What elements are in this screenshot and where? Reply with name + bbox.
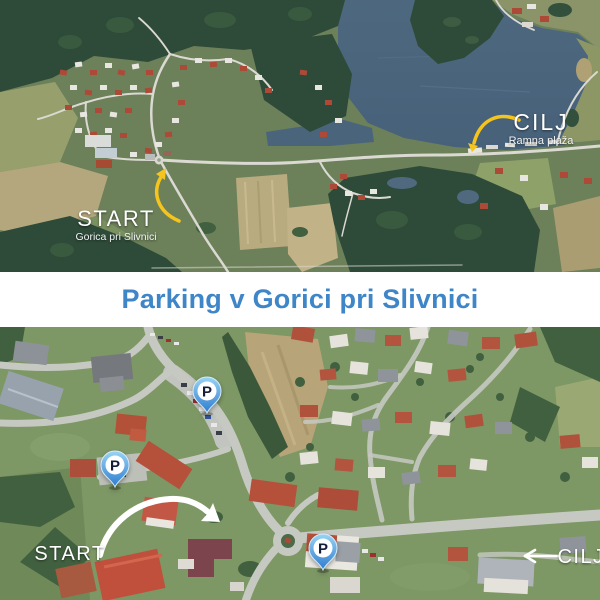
- roundabout: [273, 526, 303, 556]
- cilj-label: CILJ: [557, 546, 600, 568]
- page-title: Parking v Gorici pri Slivnici: [122, 286, 479, 313]
- pin-label: P: [318, 541, 328, 558]
- detail-map: START CILJ P P P: [0, 327, 600, 600]
- title-band: Parking v Gorici pri Slivnici: [0, 272, 600, 327]
- infographic: START Gorica pri Slivnici CILJ Ramna pla…: [0, 0, 600, 600]
- start-label: START: [34, 543, 105, 565]
- overview-map-canvas: START Gorica pri Slivnici CILJ Ramna pla…: [0, 0, 600, 272]
- overview-map: START Gorica pri Slivnici CILJ Ramna pla…: [0, 0, 600, 272]
- start-label: START: [77, 206, 155, 231]
- cilj-sublabel: Ramna plaža: [509, 135, 575, 147]
- detail-map-canvas: START CILJ P P P: [0, 327, 600, 600]
- cilj-label: CILJ: [513, 109, 568, 135]
- start-sublabel: Gorica pri Slivnici: [75, 231, 156, 243]
- pin-label: P: [110, 458, 120, 475]
- pin-label: P: [202, 384, 212, 401]
